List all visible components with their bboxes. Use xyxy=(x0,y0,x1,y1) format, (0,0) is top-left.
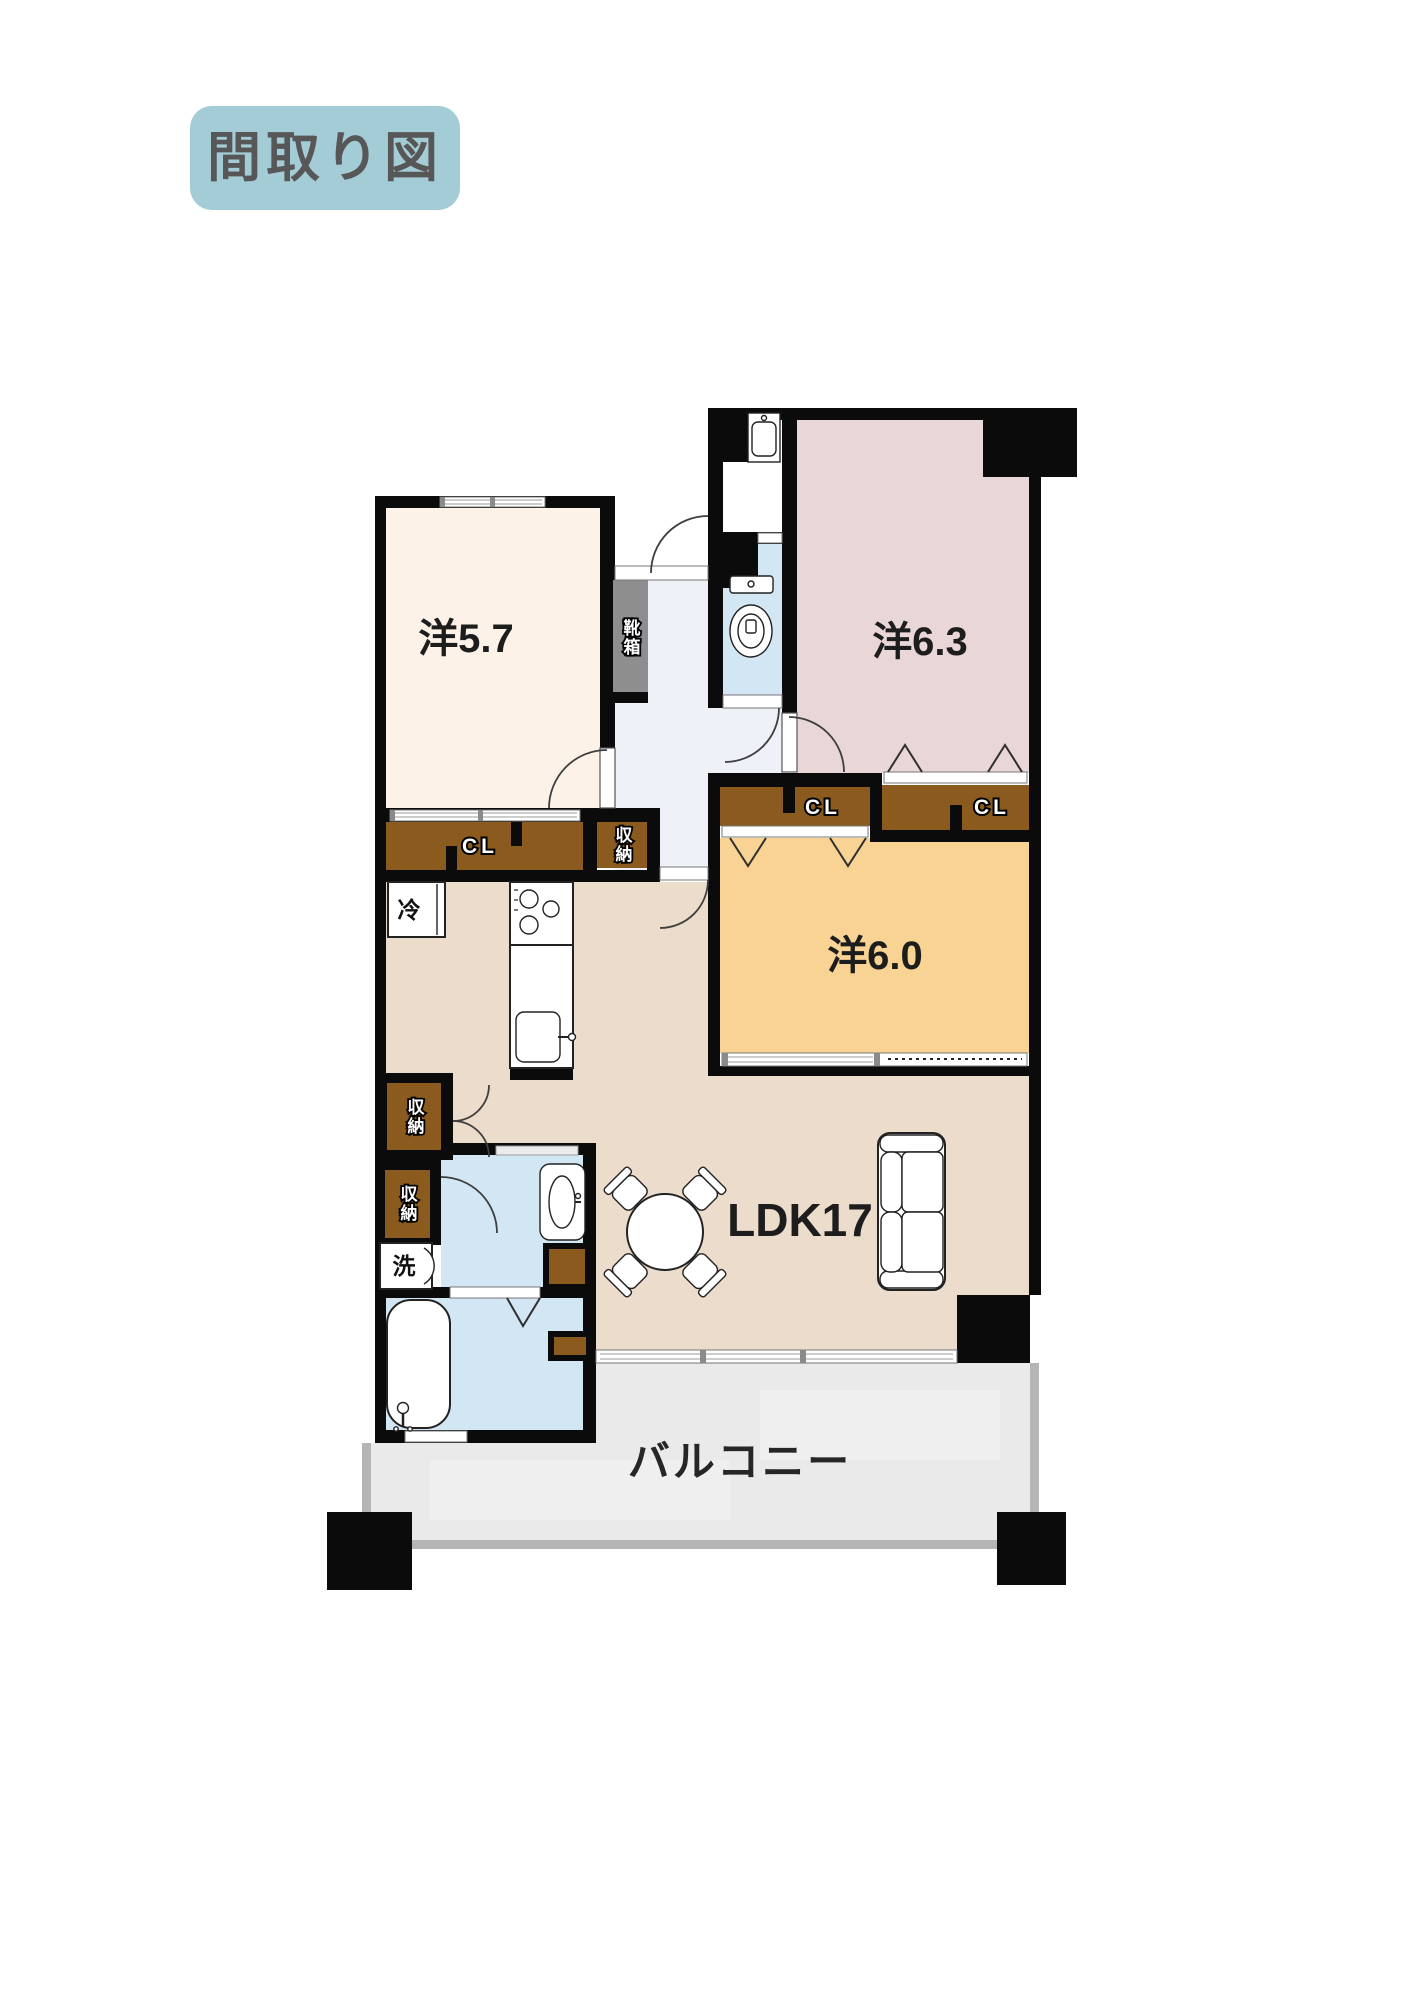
closet-divider xyxy=(783,787,795,813)
title-badge: 間取り図 xyxy=(190,106,460,210)
washer-label: 洗 xyxy=(393,1253,416,1279)
door-panel xyxy=(600,748,615,808)
shoe-cabinet-label: 靴箱 xyxy=(621,618,641,657)
pillar-icon xyxy=(957,1295,1030,1363)
room-label-ldk: LDK17 xyxy=(727,1194,873,1246)
closet-divider xyxy=(950,805,962,830)
sliding-door-icon xyxy=(596,1350,957,1363)
window-cap xyxy=(700,1350,706,1363)
bath-door-icon xyxy=(450,1287,540,1298)
window-cap xyxy=(490,497,495,507)
door-icon xyxy=(660,867,708,880)
window-cap xyxy=(874,1053,880,1066)
window-icon xyxy=(405,1431,467,1442)
floor-plan-svg: 間取り図 xyxy=(0,0,1414,2000)
room-label-western-6-0: 洋6.0 xyxy=(827,934,923,978)
pillar-icon xyxy=(983,408,1077,477)
wall-segment xyxy=(708,773,882,787)
window-icon xyxy=(758,533,782,543)
wall-segment xyxy=(375,870,660,882)
storage-label: 収納 xyxy=(398,1185,418,1223)
closet-divider xyxy=(511,822,522,846)
duct-block xyxy=(723,420,748,462)
wall-segment xyxy=(647,820,660,882)
window-cap xyxy=(722,1053,728,1066)
track-cap xyxy=(390,810,395,821)
window-cap xyxy=(440,497,445,507)
toilet-icon xyxy=(730,576,773,657)
closet-track xyxy=(722,826,868,837)
page-title: 間取り図 xyxy=(207,128,443,188)
closet-divider xyxy=(446,846,457,872)
sofa-icon xyxy=(878,1133,945,1290)
wall-segment xyxy=(708,408,723,708)
wall-segment xyxy=(782,420,797,713)
wall-segment xyxy=(583,820,597,870)
refrigerator-label: 冷 xyxy=(398,897,421,923)
balcony-rail-bottom xyxy=(362,1540,1038,1549)
track-cap xyxy=(478,810,483,821)
wall-segment xyxy=(600,496,615,748)
page: 間取り図 xyxy=(0,0,1414,2000)
storage-label: 収納 xyxy=(613,826,633,864)
wall-segment xyxy=(613,692,648,703)
window-cap xyxy=(800,1350,806,1363)
wall-segment xyxy=(708,787,720,1068)
room-label-western-6-3: 洋6.3 xyxy=(872,620,968,664)
room-label-balcony: バルコニー xyxy=(628,1438,852,1485)
wall-segment xyxy=(375,496,386,1443)
door-panel xyxy=(782,713,797,772)
pillar-icon xyxy=(327,1512,412,1590)
pillar-icon xyxy=(997,1512,1066,1585)
bathtub-icon xyxy=(387,1300,450,1431)
closet-label: CL xyxy=(462,835,498,858)
storage-label: 収納 xyxy=(405,1098,425,1136)
door-swing-icon xyxy=(651,516,708,573)
storage-niche xyxy=(549,1249,585,1284)
wall-segment xyxy=(708,1066,1041,1076)
wash-basin-icon xyxy=(748,413,780,462)
vanity-basin-icon xyxy=(540,1164,585,1240)
toilet-door-icon xyxy=(723,695,782,708)
closet-track xyxy=(884,772,1027,783)
wall-segment xyxy=(870,830,1041,842)
closet-label: CL xyxy=(805,796,841,819)
entry-door-icon xyxy=(615,566,708,580)
closet-label: CL xyxy=(974,796,1010,819)
hallway-floor-extension xyxy=(708,708,782,773)
closet-track xyxy=(390,810,580,821)
wall-segment xyxy=(1029,420,1041,1295)
room-label-western-5-7: 洋5.7 xyxy=(418,617,514,661)
sliding-door-icon xyxy=(496,1146,578,1155)
storage-niche xyxy=(554,1337,586,1355)
